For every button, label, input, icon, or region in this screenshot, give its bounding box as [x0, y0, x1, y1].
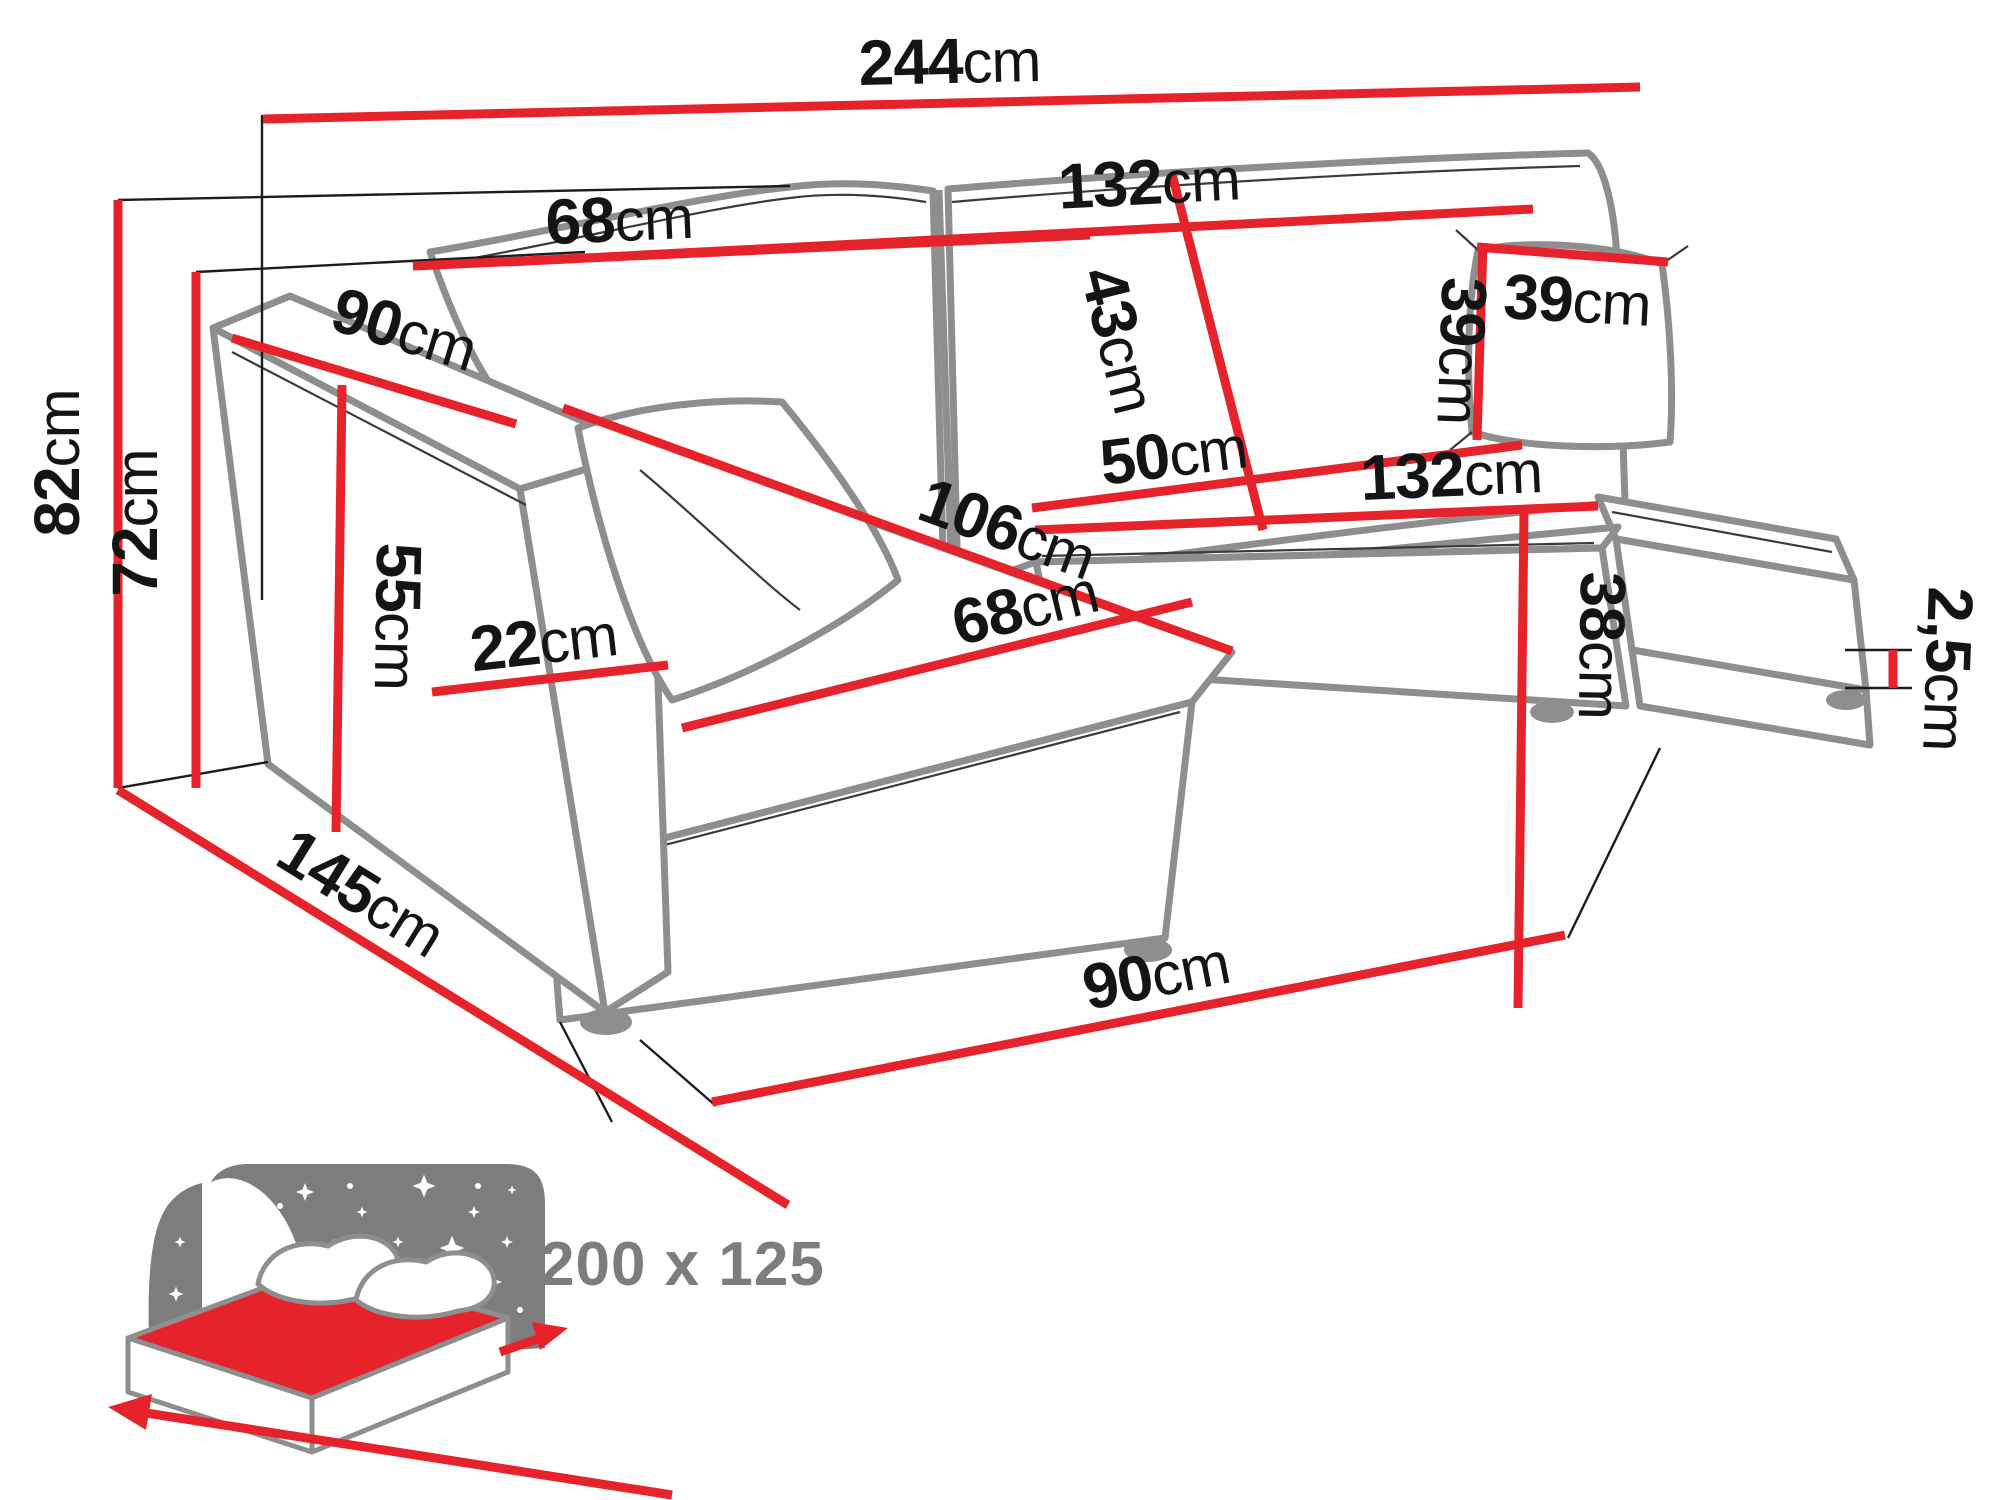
diagram-svg: 244cm 132cm 68cm 43cm 39cm 39cm 50cm 132…	[0, 0, 2000, 1500]
sleeping-area-icon: 200 x 125	[108, 1164, 825, 1495]
dim-seat-height-label: 38cm	[1565, 571, 1640, 719]
sofa-dimension-diagram: 244cm 132cm 68cm 43cm 39cm 39cm 50cm 132…	[0, 0, 2000, 1500]
sleeping-area-size-label: 200 x 125	[540, 1230, 825, 1299]
sofa-foot	[1826, 690, 1866, 710]
dim-total-height-label: 82cm	[21, 389, 93, 536]
dim-armrest-height-line	[336, 385, 342, 832]
dim-pillow-width-label: 39cm	[1502, 260, 1653, 340]
pullout-arrow-line	[140, 1412, 672, 1495]
ext-90-floor-left	[640, 1040, 716, 1106]
dim-armrest-height-label: 55cm	[361, 542, 436, 690]
dim-backrest-top-height-label: 72cm	[99, 449, 171, 596]
dim-pillow-height-label: 39cm	[1423, 276, 1500, 426]
dim-seat-height-line	[1518, 512, 1524, 1008]
dim-backrest-right-label: 132cm	[1056, 141, 1241, 222]
dim-backrest-left-label: 68cm	[544, 180, 694, 258]
ext-90-floor-right	[1568, 748, 1660, 938]
dim-seat-width-label: 132cm	[1359, 434, 1544, 514]
pullout-arrow-head	[108, 1394, 152, 1430]
sofa-foot	[580, 1009, 632, 1035]
dim-total-width-label: 244cm	[858, 23, 1041, 99]
dim-leg-height-label: 2,5cm	[1909, 586, 1987, 752]
